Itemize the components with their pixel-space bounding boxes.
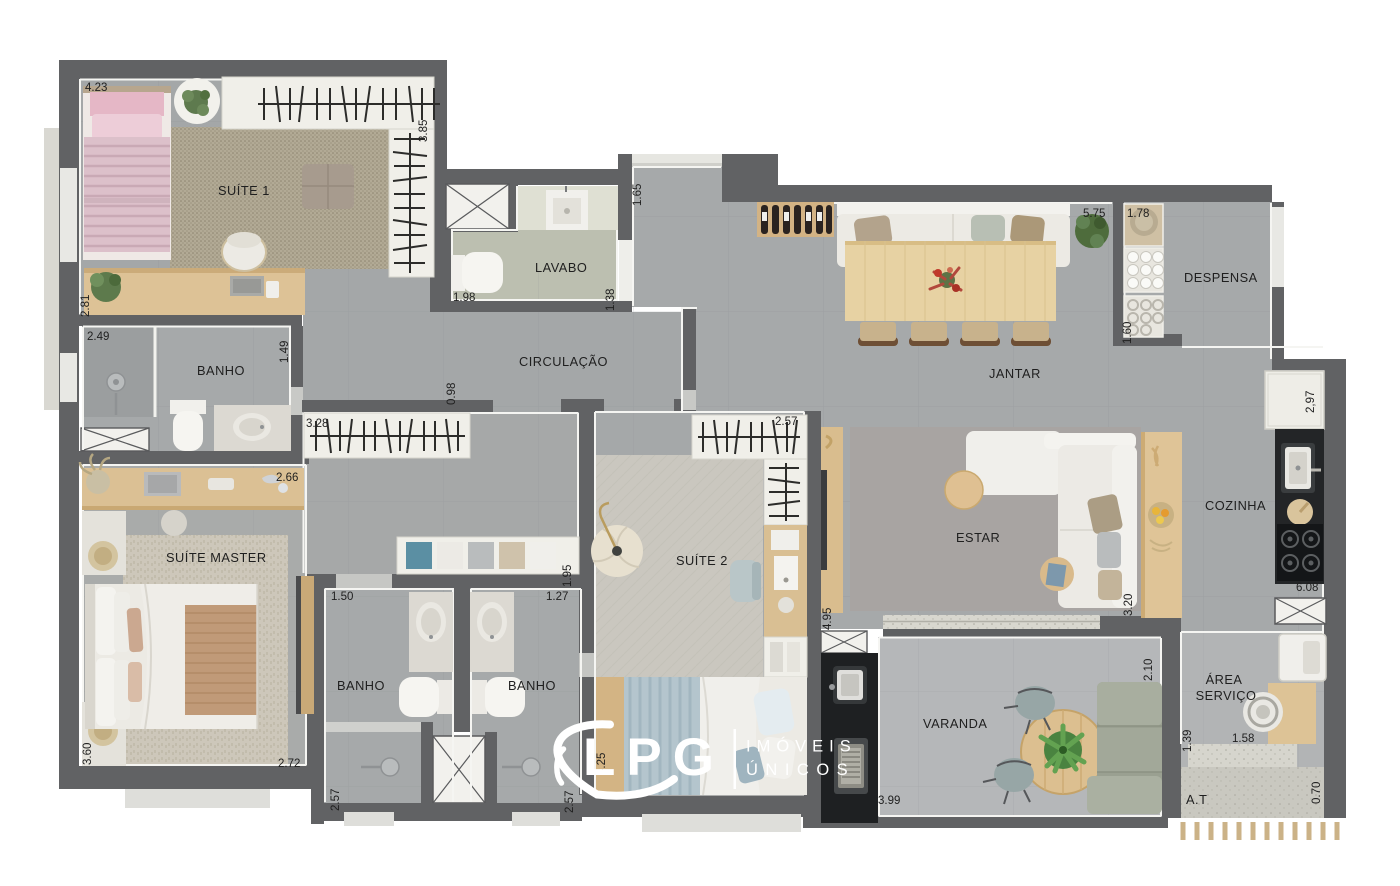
svg-text:3.60: 3.60 <box>82 743 94 765</box>
svg-text:0.70: 0.70 <box>1311 782 1323 804</box>
svg-text:6.08: 6.08 <box>1296 582 1318 594</box>
svg-text:CIRCULAÇÃO: CIRCULAÇÃO <box>519 354 608 369</box>
svg-text:SUÍTE 2: SUÍTE 2 <box>676 553 728 568</box>
svg-text:1.27: 1.27 <box>546 591 568 603</box>
svg-text:2.57: 2.57 <box>330 789 342 811</box>
svg-text:5.75: 5.75 <box>1083 208 1105 220</box>
svg-text:SUÍTE 1: SUÍTE 1 <box>218 183 270 198</box>
svg-text:3.20: 3.20 <box>1123 594 1135 616</box>
svg-text:1.58: 1.58 <box>1232 733 1254 745</box>
svg-text:1.65: 1.65 <box>632 184 644 206</box>
svg-text:4.23: 4.23 <box>85 82 107 94</box>
svg-text:1.38: 1.38 <box>605 289 617 311</box>
svg-text:1.60: 1.60 <box>1122 322 1134 344</box>
svg-text:4.95: 4.95 <box>822 608 834 630</box>
svg-text:ÁREA: ÁREA <box>1206 672 1243 687</box>
svg-text:2.81: 2.81 <box>80 295 92 317</box>
svg-text:3.99: 3.99 <box>878 795 900 807</box>
svg-text:LPG: LPG <box>583 728 725 787</box>
svg-text:A.T: A.T <box>1186 792 1207 807</box>
svg-text:3.28: 3.28 <box>306 418 328 430</box>
svg-text:1.49: 1.49 <box>279 341 291 363</box>
svg-text:SERVIÇO: SERVIÇO <box>1196 688 1257 703</box>
svg-text:IMÓVEIS: IMÓVEIS <box>746 737 857 756</box>
svg-text:2.72: 2.72 <box>278 758 300 770</box>
svg-text:VARANDA: VARANDA <box>923 716 987 731</box>
svg-text:COZINHA: COZINHA <box>1205 498 1266 513</box>
svg-text:SUÍTE MASTER: SUÍTE MASTER <box>166 550 267 565</box>
svg-text:BANHO: BANHO <box>337 678 385 693</box>
svg-text:2.49: 2.49 <box>87 331 109 343</box>
svg-text:LAVABO: LAVABO <box>535 260 587 275</box>
svg-text:1.50: 1.50 <box>331 591 353 603</box>
svg-text:BANHO: BANHO <box>197 363 245 378</box>
svg-text:3.85: 3.85 <box>418 120 430 142</box>
svg-text:1.39: 1.39 <box>1182 730 1194 752</box>
svg-text:DESPENSA: DESPENSA <box>1184 270 1258 285</box>
svg-text:1.98: 1.98 <box>453 292 475 304</box>
svg-text:ESTAR: ESTAR <box>956 530 1000 545</box>
svg-text:2.57: 2.57 <box>564 791 576 813</box>
svg-text:2.57: 2.57 <box>775 416 797 428</box>
svg-text:0.98: 0.98 <box>446 383 458 405</box>
svg-text:2.66: 2.66 <box>276 472 298 484</box>
svg-text:BANHO: BANHO <box>508 678 556 693</box>
svg-text:2,97: 2,97 <box>1305 391 1317 413</box>
svg-text:2.10: 2.10 <box>1143 659 1155 681</box>
svg-text:1.95: 1.95 <box>562 565 574 587</box>
svg-text:ÚNICOS: ÚNICOS <box>746 760 855 779</box>
svg-text:1.78: 1.78 <box>1127 208 1149 220</box>
svg-text:JANTAR: JANTAR <box>989 366 1041 381</box>
